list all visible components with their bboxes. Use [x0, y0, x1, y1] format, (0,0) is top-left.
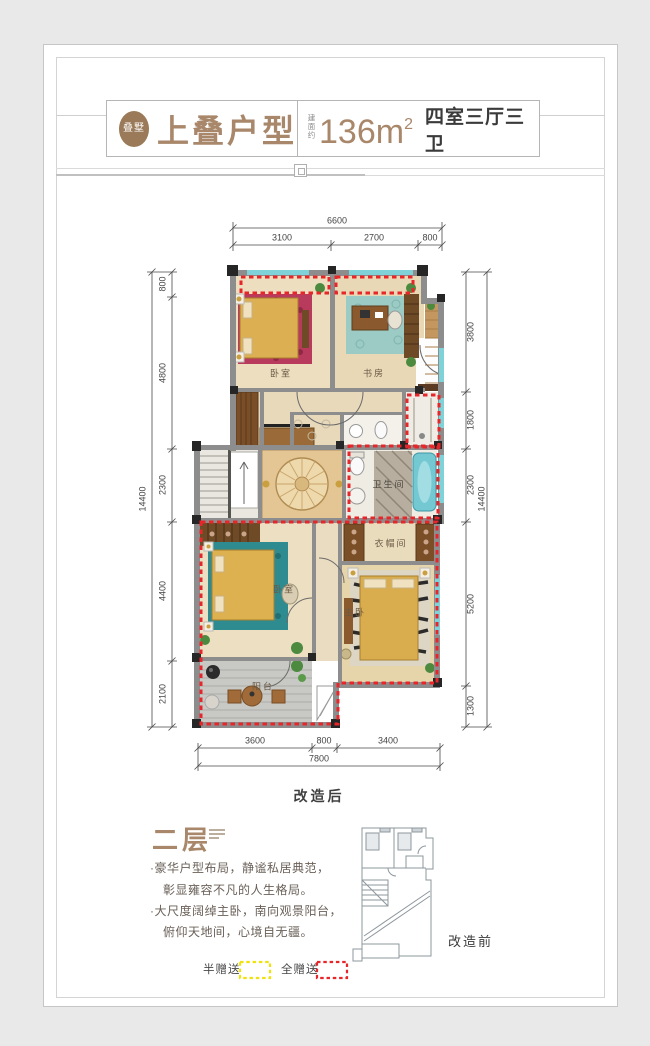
- dim-bottom-seg1: 3600: [244, 737, 266, 746]
- dim-right-seg3: 2300: [467, 474, 476, 496]
- room-label-master: 主卧: [344, 606, 366, 619]
- dim-top-seg1: 3100: [271, 234, 293, 243]
- dim-right-seg5: 1300: [467, 695, 476, 717]
- rotunda-hall: [261, 449, 344, 520]
- dim-top-seg2: 2700: [363, 234, 385, 243]
- room-label-study: 书房: [363, 367, 385, 380]
- room-label-cloakroom: 衣帽间: [374, 537, 407, 550]
- dim-top-seg3: 800: [421, 234, 438, 243]
- dim-left-seg1: 800: [159, 275, 168, 292]
- dim-left-seg3: 2300: [159, 474, 168, 496]
- master-furniture: [341, 568, 435, 673]
- dim-bottom-seg3: 3400: [377, 737, 399, 746]
- dim-left-seg4: 4400: [159, 580, 168, 602]
- room-label-bedroom-top: 卧室: [270, 367, 292, 380]
- title-mark-icon: [209, 829, 225, 839]
- dim-left-total: 14400: [139, 485, 148, 512]
- dim-right-seg4: 5200: [467, 593, 476, 615]
- floor-section-title: 二层: [152, 820, 212, 857]
- room-label-bedroom-low: 卧室: [273, 583, 295, 596]
- caption-before-renovation: 改造前: [448, 931, 493, 950]
- room-label-bathroom: 卫生间: [372, 478, 405, 491]
- bullet-line-1: ·豪华户型布局，静谧私居典范，: [150, 859, 330, 876]
- dim-top-total: 6600: [326, 217, 348, 226]
- bullet-line-3: ·大尺度阔绰主卧，南向观景阳台，: [150, 902, 342, 919]
- legend-full-gift-label: 全赠送: [281, 962, 319, 978]
- dim-right-seg1: 3800: [467, 321, 476, 343]
- bullet-line-2: 彰显雍容不凡的人生格局。: [163, 881, 313, 898]
- legend-full-gift-swatch: [317, 962, 347, 978]
- legend-half-gift-label: 半赠送: [203, 962, 241, 978]
- dim-bottom-total: 7800: [308, 755, 330, 764]
- dim-left-seg2: 4800: [159, 362, 168, 384]
- bullet-line-4: 俯仰天地间，心境自无疆。: [163, 923, 313, 940]
- mini-plan: [353, 828, 433, 961]
- room-label-balcony: 阳台: [252, 680, 274, 693]
- floor-plan-graphic: [0, 0, 650, 1046]
- legend-half-gift-swatch: [240, 962, 270, 978]
- dim-bottom-seg2: 800: [315, 737, 332, 746]
- caption-after-renovation: 改造后: [294, 786, 345, 806]
- dim-right-total: 14400: [478, 485, 487, 512]
- dim-right-seg2: 1800: [467, 409, 476, 431]
- dim-left-seg5: 2100: [159, 683, 168, 705]
- brochure-page: 叠墅 上叠户型 建面约 136m2 四室三厅三卫: [0, 0, 650, 1046]
